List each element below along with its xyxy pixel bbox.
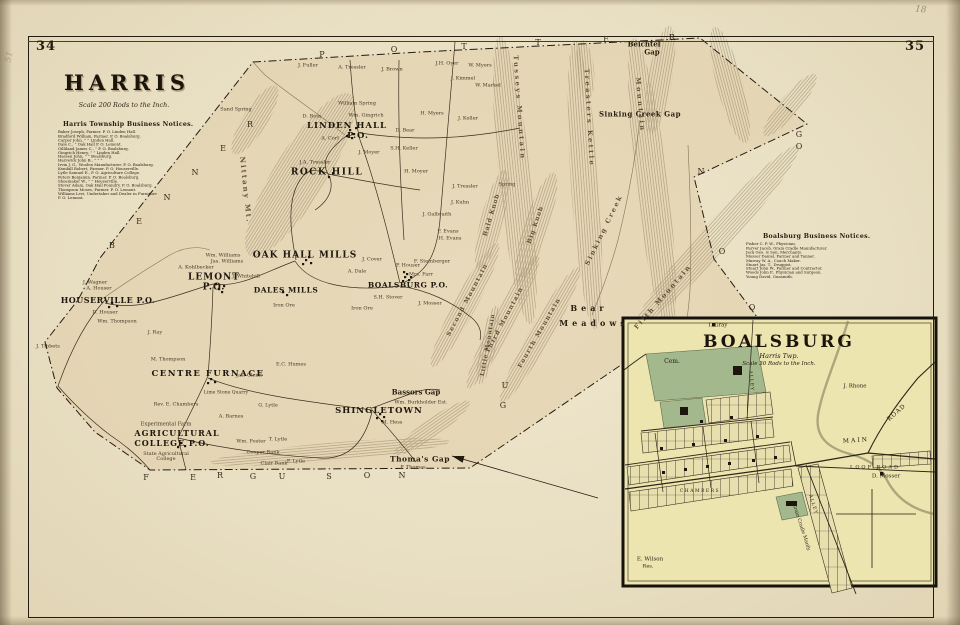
boundary-letter: O	[796, 143, 803, 151]
boundary-letter: E	[603, 36, 609, 44]
resident-label: M. Hess	[382, 421, 403, 426]
boundary-letter: S	[326, 473, 331, 481]
inset-label: D. Mosser	[872, 474, 900, 480]
resident-label: J. Whitehill	[232, 275, 260, 280]
boundary-letter: G	[796, 131, 802, 139]
resident-label: H. Myers	[420, 112, 443, 117]
boundary-letter: F	[143, 474, 149, 482]
town-label: AGRICULTURAL	[134, 429, 219, 437]
resident-label: A. Tressler	[338, 66, 366, 71]
resident-label: Wm. Foster	[236, 440, 265, 445]
gap-label: Beichtel	[628, 41, 661, 48]
boundary-letter: N	[164, 194, 171, 202]
boundary-letter: O	[719, 248, 726, 256]
resident-label: H. Evans	[439, 237, 462, 242]
boundary-letter: R	[669, 34, 675, 42]
resident-label: Iron Ore	[273, 304, 295, 309]
folio-right: 35	[905, 39, 925, 54]
resident-label: J. Tressler	[452, 185, 478, 190]
inset-label: CHAMBERS	[680, 490, 720, 495]
boundary-letter: O	[749, 304, 756, 312]
resident-label: T. Lytle	[269, 438, 287, 443]
map-scale-note: Scale 200 Rods to the Inch.	[64, 101, 184, 109]
atlas-page: 34 35 18 51 HARRIS Scale 200 Rods to the…	[0, 0, 960, 625]
resident-label: P. Houser	[396, 264, 420, 269]
resident-label: G. Lytle	[258, 404, 278, 409]
resident-label: S.H. Stover	[374, 296, 403, 301]
resident-label: P. Lytle	[287, 460, 305, 465]
resident-label: Rev. E. Chambers	[154, 403, 199, 408]
town-label: P.O.	[203, 284, 226, 293]
resident-label: D. Bear	[395, 129, 414, 134]
town-label: BOALSBURG P.O.	[368, 281, 448, 289]
inset-label: I. Gray	[708, 323, 727, 329]
inset-title: BOALSBURG	[694, 332, 864, 352]
resident-label: Jas. Glenn	[236, 374, 262, 379]
notice-line: Young David, Gunsmith.	[746, 275, 960, 279]
resident-label: J.H. Oyer	[435, 62, 458, 67]
resident-label: D. Ross	[303, 115, 322, 120]
resident-label: State Agricultural College	[134, 452, 198, 462]
boundary-letter: U	[502, 382, 509, 390]
resident-label: Mrs. Farr	[409, 273, 433, 278]
resident-label: J. Tibbets	[36, 345, 60, 350]
folio-left: 34	[36, 39, 56, 54]
resident-label: W. Markel	[475, 84, 501, 89]
resident-label: Clair Bank	[261, 462, 288, 467]
boalsburg-notices-heading: Boalsburg Business Notices.	[763, 233, 870, 240]
resident-label: J.A. Tressler	[300, 161, 331, 166]
pencil-note: 18	[915, 4, 927, 15]
resident-label: J. Cover	[362, 258, 382, 263]
resident-label: J. Ray	[148, 331, 162, 336]
boundary-letter: T	[461, 43, 466, 51]
gap-label: Meadows	[559, 319, 628, 327]
boundary-letter: G	[250, 473, 256, 481]
boundary-letter: B	[109, 242, 115, 250]
gap-label: Thoma's Gap	[390, 455, 450, 463]
resident-label: D. Houser	[92, 311, 118, 316]
resident-label: W. Myers	[468, 64, 491, 69]
town-label: OAK HALL MILLS	[253, 252, 357, 261]
resident-label: A. Barnes	[219, 415, 244, 420]
resident-label: Lime Stone Quarry	[204, 392, 248, 397]
town-label: P.O.	[347, 132, 369, 141]
boundary-letter: N	[192, 169, 199, 177]
gap-label: Gap	[644, 49, 659, 56]
resident-label: Wm. Burkholder Est.	[394, 401, 447, 406]
inset-label: LOOP ROAD	[850, 466, 900, 471]
inset-subtitle: Harris Twp.	[694, 352, 864, 360]
resident-label: E.C. Humes	[276, 363, 306, 368]
resident-label: J. Keller	[458, 117, 478, 122]
resident-label: Iron Ore	[351, 307, 373, 312]
gap-label: Bassors Gap	[392, 389, 440, 396]
town-label: DALES MILLS	[254, 286, 319, 294]
resident-label: J. Brown	[381, 68, 402, 73]
map-title: HARRIS	[64, 70, 184, 95]
town-label: LINDEN HALL	[307, 122, 387, 131]
north-arrow	[452, 456, 598, 498]
inset-label: ALLEY	[747, 371, 753, 392]
resident-label: J. Fuller	[298, 64, 318, 69]
resident-label: J. Galbraith	[423, 213, 452, 218]
resident-label: H. Moyer	[404, 170, 428, 175]
resident-label: J. Kuhn	[451, 201, 469, 206]
inset-label: J. Rhone	[843, 384, 866, 390]
resident-label: A. Kohlbecker	[178, 266, 214, 271]
gap-label: Bear	[570, 304, 607, 312]
resident-label: M. Thompson	[151, 358, 186, 363]
inset-scale-note: Scale 30 Rods to the Inch.	[694, 361, 864, 367]
town-label: HOUSERVILLE P.O.	[61, 296, 156, 304]
resident-label: William Spring	[338, 102, 376, 107]
resident-label: Sand Spring	[220, 108, 251, 113]
resident-label: P. Thomas	[400, 466, 425, 471]
boalsburg-notices-list: Fisher C. P. W., Physician.Farver Jacob,…	[746, 242, 960, 279]
inset-label: Res.	[643, 565, 654, 570]
boundary-letter: N	[698, 168, 705, 176]
resident-label: Wm. Gingrich	[348, 114, 383, 119]
boundary-letter: G	[500, 402, 506, 410]
boundary-letter: E	[190, 474, 196, 482]
resident-label: F. Evans	[437, 230, 458, 235]
resident-label: Wm. Thompson	[97, 320, 136, 325]
boundary-letter: R	[217, 472, 223, 480]
resident-label: S.H. Keller	[390, 147, 417, 152]
town-label: ROCK HILL	[291, 169, 363, 178]
resident-label: A. Houser	[86, 287, 111, 292]
boundary-letter: E	[136, 218, 142, 226]
boundary-letter: N	[399, 472, 406, 480]
harris-notices-heading: Harris Township Business Notices.	[63, 121, 193, 128]
boundary-letter: T	[535, 39, 540, 47]
boundary-letter: O	[391, 46, 398, 54]
town-label: SHINGLETOWN	[335, 407, 423, 416]
resident-label: Cooper Bank	[247, 451, 280, 456]
resident-label: J. Mosser	[418, 302, 441, 307]
resident-label: Experimental Farm	[141, 422, 192, 427]
resident-label: Jas. Williams	[211, 260, 243, 265]
inset-label: Cem.	[664, 359, 680, 365]
boundary-letter: O	[364, 472, 371, 480]
resident-label: J. Kimmel	[451, 77, 475, 82]
boundary-letter: U	[279, 473, 286, 481]
town-label: COLLEGE P.O.	[134, 439, 209, 447]
inset-label: E. Wilson	[637, 557, 663, 563]
boundary-letter: E	[220, 145, 226, 153]
boundary-letter: R	[247, 121, 253, 129]
boundary-letter: P	[319, 51, 324, 59]
resident-label: Spring	[498, 183, 515, 188]
resident-label: J. Moyer	[358, 151, 379, 156]
resident-label: A. Dale	[348, 270, 366, 275]
resident-label: A. Corl	[321, 137, 339, 142]
